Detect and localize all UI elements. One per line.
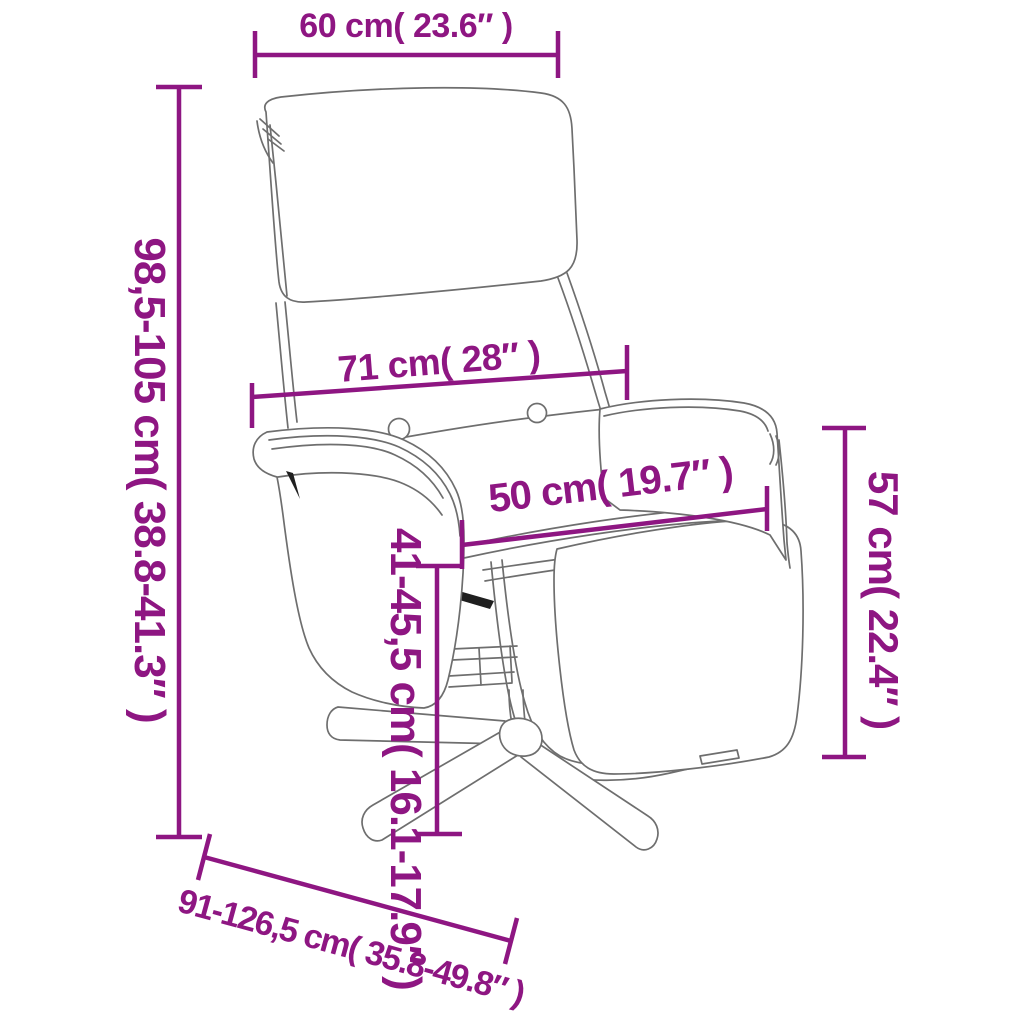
headrest-cushion xyxy=(265,88,577,302)
mechanism-slat-joint xyxy=(479,646,512,685)
dim-overall-depth: 91-126,5 cm( 35.8-49.8″ ) xyxy=(174,834,528,1013)
diagram-svg: 60 cm( 23.6″ ) 98,5-105 cm( 38.8-41.3″ )… xyxy=(0,0,1024,1024)
dim-side-height-label: 57 cm( 22.4″ ) xyxy=(860,471,907,729)
base-hub xyxy=(500,718,542,756)
dim-headrest-width-label: 60 cm( 23.6″ ) xyxy=(299,7,512,45)
backrest-right-edge xyxy=(567,273,613,421)
dim-headrest-width: 60 cm( 23.6″ ) xyxy=(255,7,558,78)
backrest-left-edge-inner xyxy=(285,302,297,422)
dimension-diagram: 60 cm( 23.6″ ) 98,5-105 cm( 38.8-41.3″ )… xyxy=(0,0,1024,1024)
dim-overall-depth-label: 91-126,5 cm( 35.8-49.8″ ) xyxy=(174,882,528,1013)
dim-overall-height-label: 98,5-105 cm( 38.8-41.3″ ) xyxy=(125,237,174,722)
dim-backrest-width: 71 cm( 28″ ) xyxy=(252,333,627,428)
dim-backrest-width-label: 71 cm( 28″ ) xyxy=(336,333,542,390)
mechanism-slat-1 xyxy=(452,646,517,660)
backrest-right-edge-inner xyxy=(558,278,601,411)
dim-overall-height: 98,5-105 cm( 38.8-41.3″ ) xyxy=(125,87,202,837)
footrest-cushion xyxy=(554,520,803,774)
seat-button-right xyxy=(528,404,547,423)
dim-seat-height-label: 41-45,5 cm( 16.1-17.9″ ) xyxy=(381,528,430,990)
dim-side-height: 57 cm( 22.4″ ) xyxy=(822,428,907,757)
